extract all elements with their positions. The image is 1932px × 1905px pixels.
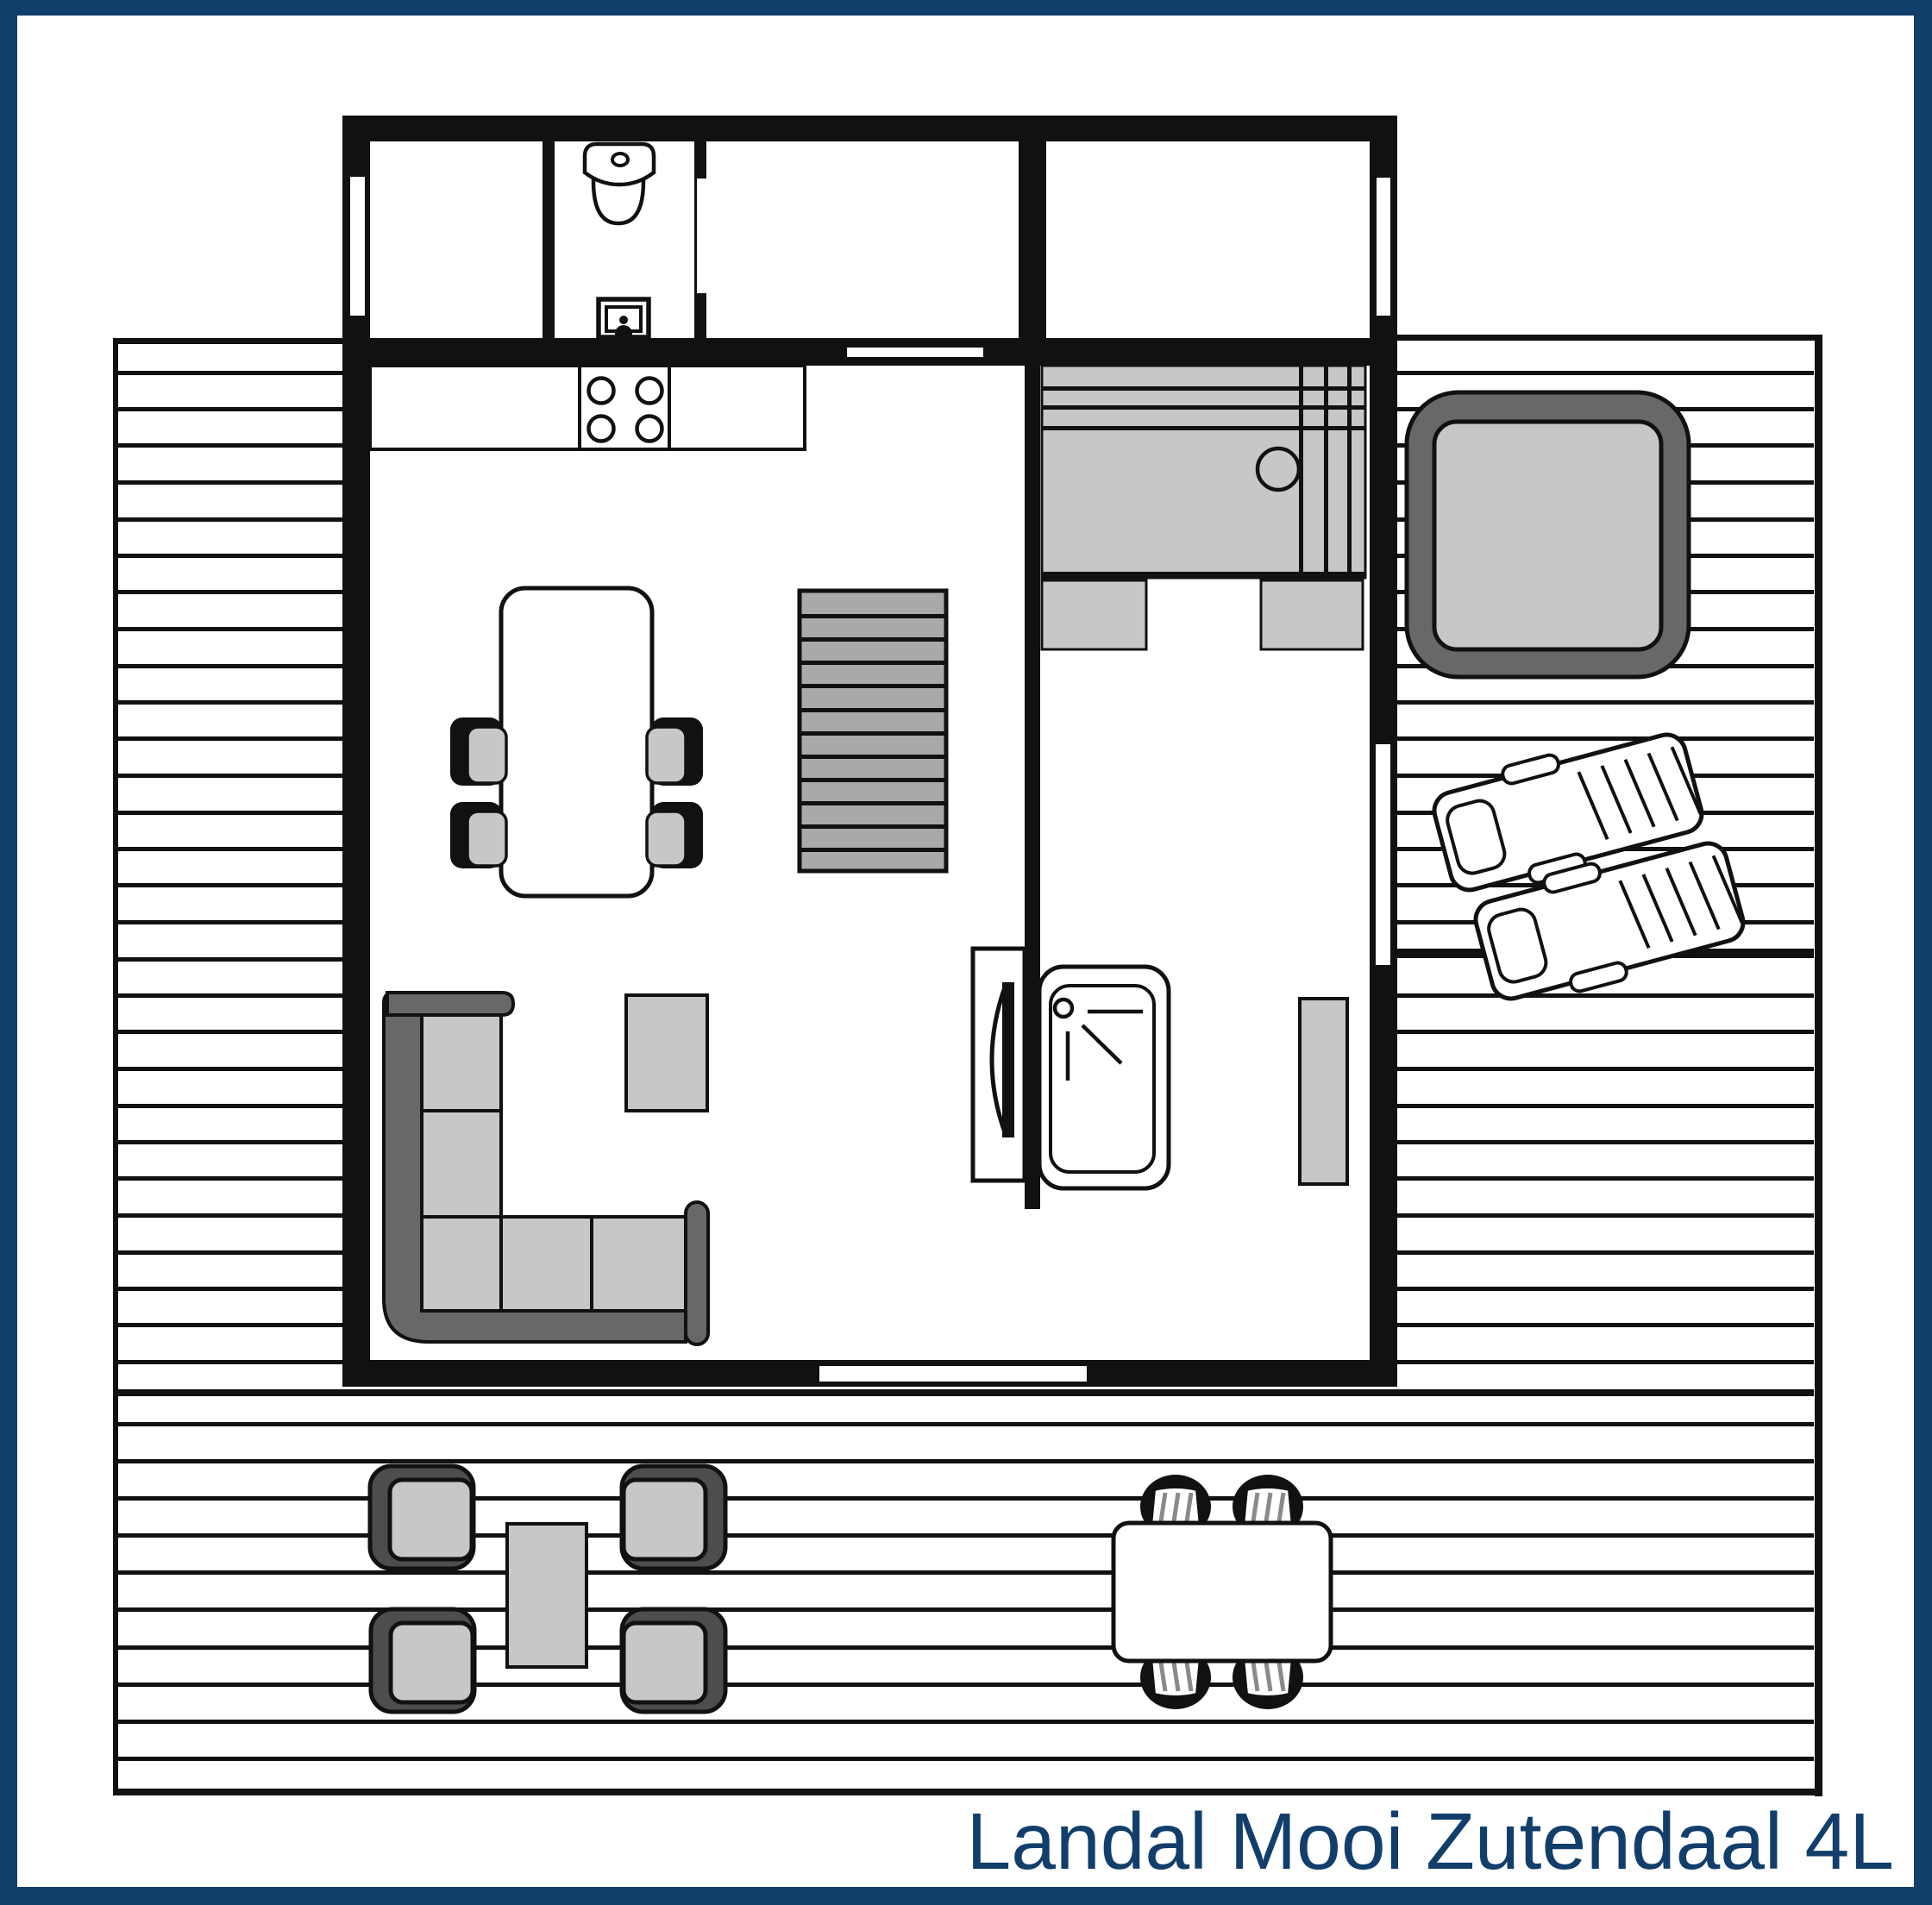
- svg-text:Landal Mooi Zutendaal 4L: Landal Mooi Zutendaal 4L: [967, 1796, 1894, 1886]
